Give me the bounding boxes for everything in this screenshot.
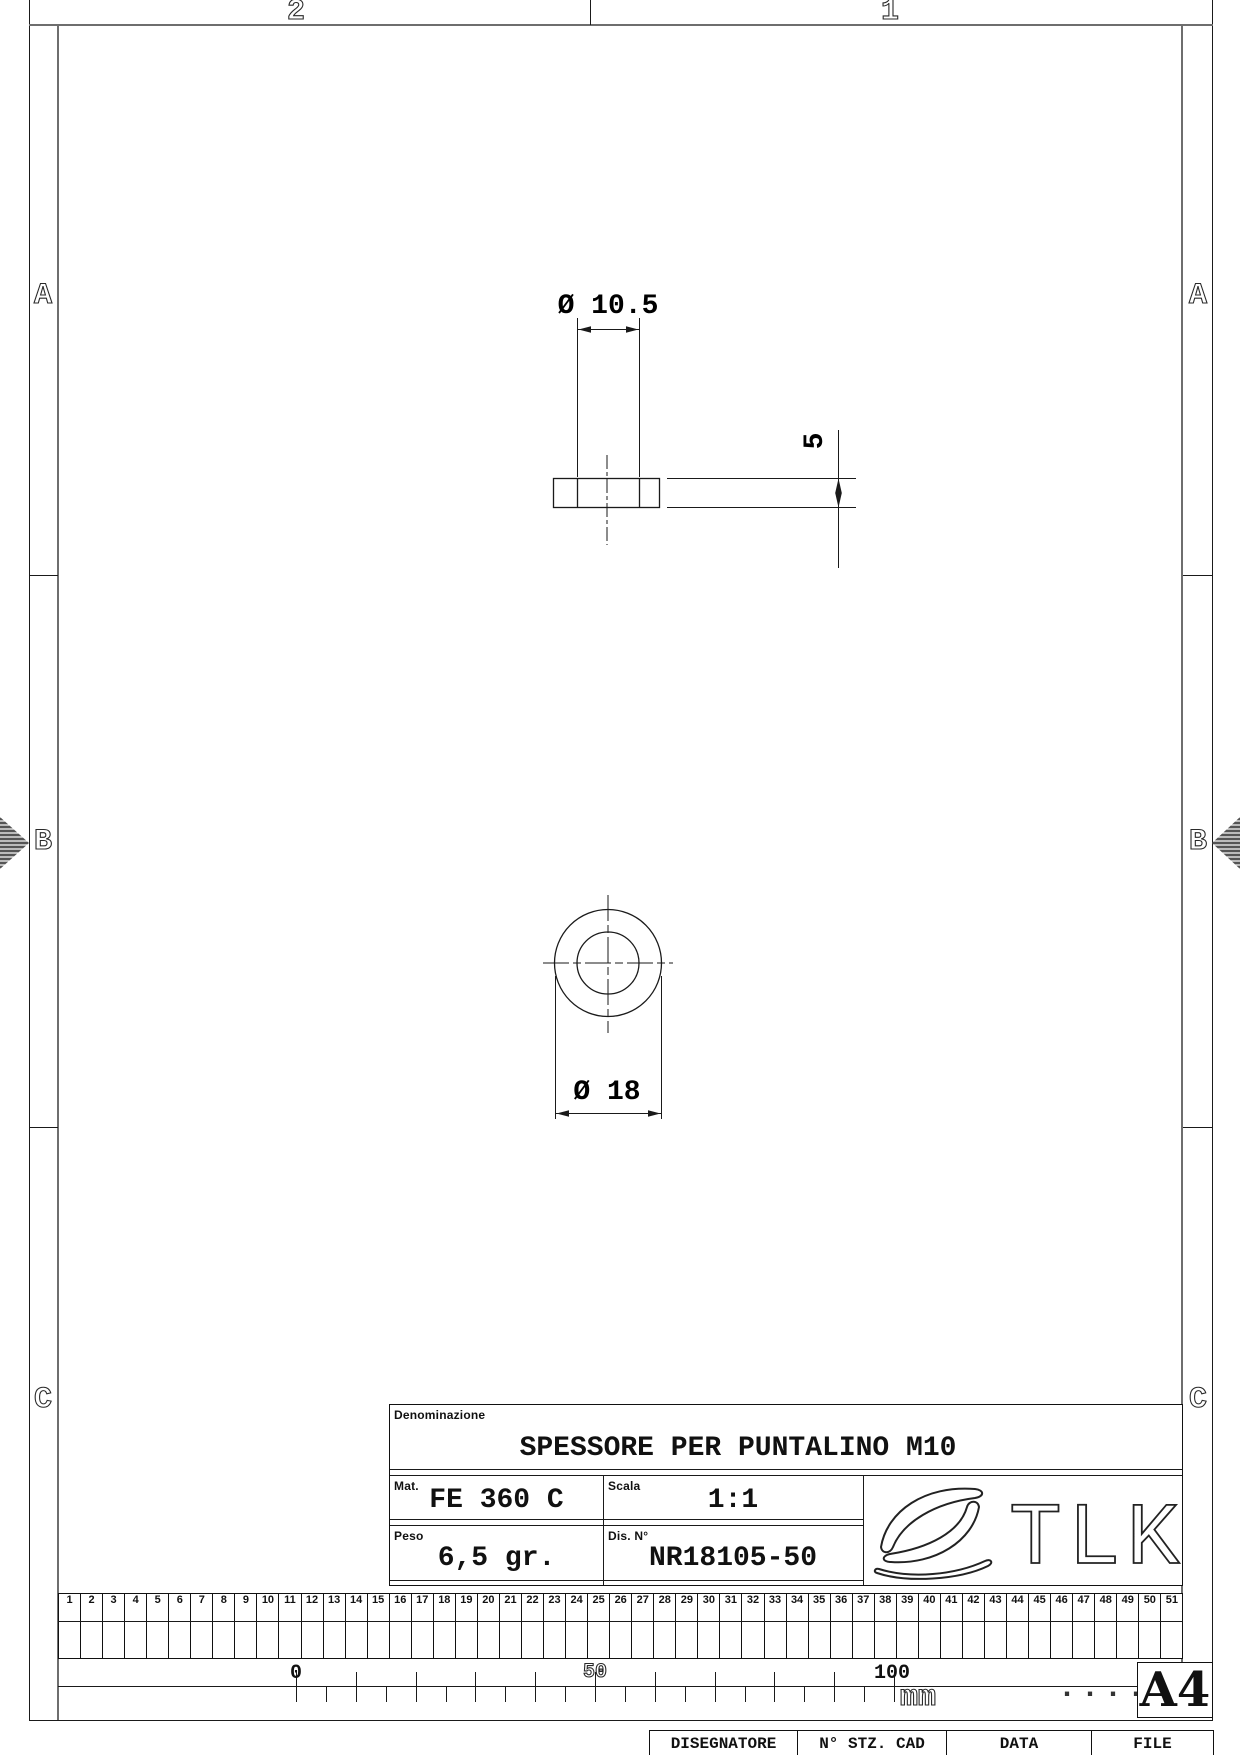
ruler-cell: 1 <box>59 1594 81 1658</box>
scale-bar-tick <box>356 1672 357 1702</box>
ruler-cell-number: 1 <box>59 1594 80 1622</box>
ruler-cell-number: 25 <box>588 1594 609 1622</box>
ruler-cell-number: 36 <box>831 1594 852 1622</box>
ruler-cell: 19 <box>456 1594 478 1658</box>
scale-bar-tick <box>864 1686 865 1702</box>
ruler-cell: 50 <box>1139 1594 1161 1658</box>
ruler-cell-number: 33 <box>765 1594 786 1622</box>
ruler-cell-number: 23 <box>544 1594 565 1622</box>
ruler-cell-number: 51 <box>1161 1594 1182 1622</box>
company-logo: TLK <box>863 1475 1184 1585</box>
ruler-cell-number: 19 <box>456 1594 477 1622</box>
title-block: Denominazione SPESSORE PER PUNTALINO M10… <box>389 1404 1183 1586</box>
ruler-cell: 10 <box>257 1594 279 1658</box>
dim-outer-diameter-text: Ø 18 <box>573 1077 640 1108</box>
ruler-cell-number: 14 <box>346 1594 367 1622</box>
ruler-cell: 12 <box>302 1594 324 1658</box>
ruler-cell-number: 29 <box>676 1594 697 1622</box>
scale-bar-tick <box>625 1686 626 1702</box>
ruler-cell: 25 <box>588 1594 610 1658</box>
ruler-cell: 2 <box>81 1594 103 1658</box>
ruler-cell-number: 21 <box>500 1594 521 1622</box>
ruler-cell: 5 <box>147 1594 169 1658</box>
ruler-cell-number: 45 <box>1029 1594 1050 1622</box>
ruler-cell: 22 <box>522 1594 544 1658</box>
ruler-cell-number: 8 <box>213 1594 234 1622</box>
scala-value: 1:1 <box>603 1485 863 1516</box>
ruler-cell: 34 <box>787 1594 809 1658</box>
scale-bar-tick <box>834 1672 835 1702</box>
sheet-format-box: A4 <box>1137 1662 1213 1718</box>
ruler-cell-number: 6 <box>169 1594 190 1622</box>
ruler-cell: 24 <box>566 1594 588 1658</box>
ruler-cell: 18 <box>434 1594 456 1658</box>
ruler-cell-number: 22 <box>522 1594 543 1622</box>
ruler-cell-number: 49 <box>1117 1594 1138 1622</box>
ruler-cell-number: 40 <box>919 1594 940 1622</box>
scale-bar-tick <box>535 1672 536 1702</box>
ruler-cell-number: 39 <box>897 1594 918 1622</box>
ruler-cell: 15 <box>368 1594 390 1658</box>
dim-arrow-right <box>626 326 639 333</box>
ruler-cell: 29 <box>676 1594 698 1658</box>
center-fold-mark-right <box>1212 817 1240 869</box>
ruler-cell-number: 35 <box>809 1594 830 1622</box>
ruler-cell: 14 <box>346 1594 368 1658</box>
scale-bar-tick <box>446 1686 447 1702</box>
ruler-cell: 4 <box>125 1594 147 1658</box>
ruler-cell-number: 34 <box>787 1594 808 1622</box>
ruler-cell: 9 <box>235 1594 257 1658</box>
ruler-cell: 38 <box>875 1594 897 1658</box>
ruler-cell-number: 24 <box>566 1594 587 1622</box>
scale-bar-tick <box>326 1686 327 1702</box>
ruler-cell-number: 28 <box>654 1594 675 1622</box>
mat-value: FE 360 C <box>390 1485 603 1516</box>
sheet-format-label: A4 <box>1140 1662 1211 1718</box>
ruler-cell: 49 <box>1117 1594 1139 1658</box>
dim-thickness <box>667 430 856 568</box>
ruler-cell: 35 <box>809 1594 831 1658</box>
ruler-cell-number: 31 <box>720 1594 741 1622</box>
ruler-cell: 48 <box>1095 1594 1117 1658</box>
ruler-cell-number: 4 <box>125 1594 146 1622</box>
ruler-cell-number: 43 <box>985 1594 1006 1622</box>
ruler-cell: 26 <box>610 1594 632 1658</box>
scale-bar-tick <box>655 1672 656 1702</box>
ruler-cell: 27 <box>632 1594 654 1658</box>
ruler-cell: 23 <box>544 1594 566 1658</box>
peso-value: 6,5 gr. <box>390 1543 603 1574</box>
ruler-cell: 44 <box>1007 1594 1029 1658</box>
dim-arrow-left <box>579 326 592 333</box>
ruler-cell-number: 7 <box>191 1594 212 1622</box>
ruler-cell-number: 15 <box>368 1594 389 1622</box>
ruler-cell-number: 9 <box>235 1594 256 1622</box>
ruler-cell-number: 11 <box>279 1594 300 1622</box>
ruler-cell: 28 <box>654 1594 676 1658</box>
ruler-cell-number: 16 <box>390 1594 411 1622</box>
scale-bar-tick <box>475 1672 476 1702</box>
footer-strip: DISEGNATOREN° STZ. CADDATAFILE <box>649 1730 1214 1755</box>
ruler-cell-number: 13 <box>324 1594 345 1622</box>
ruler-cell-number: 17 <box>412 1594 433 1622</box>
ruler-cell-number: 10 <box>257 1594 278 1622</box>
dim-arrow-right <box>648 1110 661 1117</box>
dim-hole-diameter <box>578 318 640 477</box>
footer-cell-disegnatore: DISEGNATORE <box>650 1731 798 1755</box>
ruler-cell: 11 <box>279 1594 301 1658</box>
unit-label: mm <box>900 1681 936 1715</box>
ruler-cell: 47 <box>1073 1594 1095 1658</box>
scale-bar-tick <box>804 1686 805 1702</box>
scale-bar-tick <box>386 1686 387 1702</box>
ruler-cell: 40 <box>919 1594 941 1658</box>
ruler-cell-number: 47 <box>1073 1594 1094 1622</box>
ruler-cell-number: 26 <box>610 1594 631 1622</box>
scale-bar-line <box>58 1686 1137 1687</box>
ruler-cell: 41 <box>941 1594 963 1658</box>
tb-line <box>390 1580 863 1581</box>
ruler-cell-number: 50 <box>1139 1594 1160 1622</box>
ruler-cell: 7 <box>191 1594 213 1658</box>
ruler-cell: 33 <box>765 1594 787 1658</box>
ruler-cell-number: 20 <box>478 1594 499 1622</box>
ruler-cell-number: 2 <box>81 1594 102 1622</box>
ruler-cell-number: 48 <box>1095 1594 1116 1622</box>
ruler-cell: 39 <box>897 1594 919 1658</box>
ruler-cell: 51 <box>1161 1594 1182 1658</box>
ruler-cell: 16 <box>390 1594 412 1658</box>
ruler-cell-number: 18 <box>434 1594 455 1622</box>
ruler-cell: 30 <box>698 1594 720 1658</box>
ruler-cell-number: 38 <box>875 1594 896 1622</box>
scale-label-0: 0 <box>281 1662 311 1685</box>
peso-label: Peso <box>394 1529 423 1543</box>
ruler-cell-number: 3 <box>103 1594 124 1622</box>
ruler-cell-number: 37 <box>853 1594 874 1622</box>
ruler-cell: 32 <box>742 1594 764 1658</box>
ruler-cell: 3 <box>103 1594 125 1658</box>
drawing-sheet: 2 1 A B C A B C <box>0 0 1240 1755</box>
ruler-cell: 20 <box>478 1594 500 1658</box>
scale-bar-tick <box>715 1672 716 1702</box>
logo-text: TLK <box>1009 1491 1184 1585</box>
ruler-cell-number: 32 <box>742 1594 763 1622</box>
ruler-cell: 6 <box>169 1594 191 1658</box>
part-name: SPESSORE PER PUNTALINO M10 <box>390 1433 1086 1464</box>
footer-cell-file: FILE <box>1092 1731 1213 1755</box>
dim-hole-diameter-text: Ø 10.5 <box>558 291 659 322</box>
logo-swoosh-icon <box>875 1489 991 1579</box>
ruler-cell-number: 44 <box>1007 1594 1028 1622</box>
dim-arrow-left <box>557 1110 570 1117</box>
scale-label-50: 50 <box>573 1661 617 1684</box>
ruler-cell: 13 <box>324 1594 346 1658</box>
ruler-mid-line <box>58 1621 1183 1622</box>
scale-bar-tick <box>416 1672 417 1702</box>
ruler-cell: 31 <box>720 1594 742 1658</box>
ruler-cell: 42 <box>963 1594 985 1658</box>
ruler-cell: 43 <box>985 1594 1007 1658</box>
scale-bar-tick <box>505 1686 506 1702</box>
ruler-cell: 37 <box>853 1594 875 1658</box>
denominazione-label: Denominazione <box>394 1408 485 1422</box>
scale-bar-tick <box>565 1686 566 1702</box>
tb-line <box>390 1469 1182 1470</box>
dis-number-value: NR18105-50 <box>603 1543 863 1574</box>
ruler-cell-number: 46 <box>1051 1594 1072 1622</box>
ruler-cell-number: 12 <box>302 1594 323 1622</box>
ruler-cell-number: 5 <box>147 1594 168 1622</box>
ruler-cell-number: 30 <box>698 1594 719 1622</box>
footer-cell-data: DATA <box>947 1731 1092 1755</box>
ruler-cell: 21 <box>500 1594 522 1658</box>
ruler-cell: 46 <box>1051 1594 1073 1658</box>
tb-line <box>390 1519 863 1520</box>
ruler-cell: 17 <box>412 1594 434 1658</box>
dim-thickness-arrow <box>835 479 842 508</box>
scale-bar-tick <box>685 1686 686 1702</box>
scale-bar-tick <box>774 1672 775 1702</box>
ruler-cell-number: 42 <box>963 1594 984 1622</box>
ruler-cell-number: 41 <box>941 1594 962 1622</box>
tb-line <box>390 1525 863 1526</box>
ruler-cell: 8 <box>213 1594 235 1658</box>
ruler-strip: 1234567891011121314151617181920212223242… <box>58 1593 1183 1659</box>
dis-number-label: Dis. N° <box>608 1529 648 1543</box>
footer-cell-n-stz-cad: N° STZ. CAD <box>798 1731 947 1755</box>
ruler-cell: 45 <box>1029 1594 1051 1658</box>
center-fold-mark-left <box>0 817 29 869</box>
ruler-cell-number: 27 <box>632 1594 653 1622</box>
dim-thickness-text: 5 <box>800 433 831 450</box>
scale-bar-tick <box>745 1686 746 1702</box>
ruler-cell: 36 <box>831 1594 853 1658</box>
